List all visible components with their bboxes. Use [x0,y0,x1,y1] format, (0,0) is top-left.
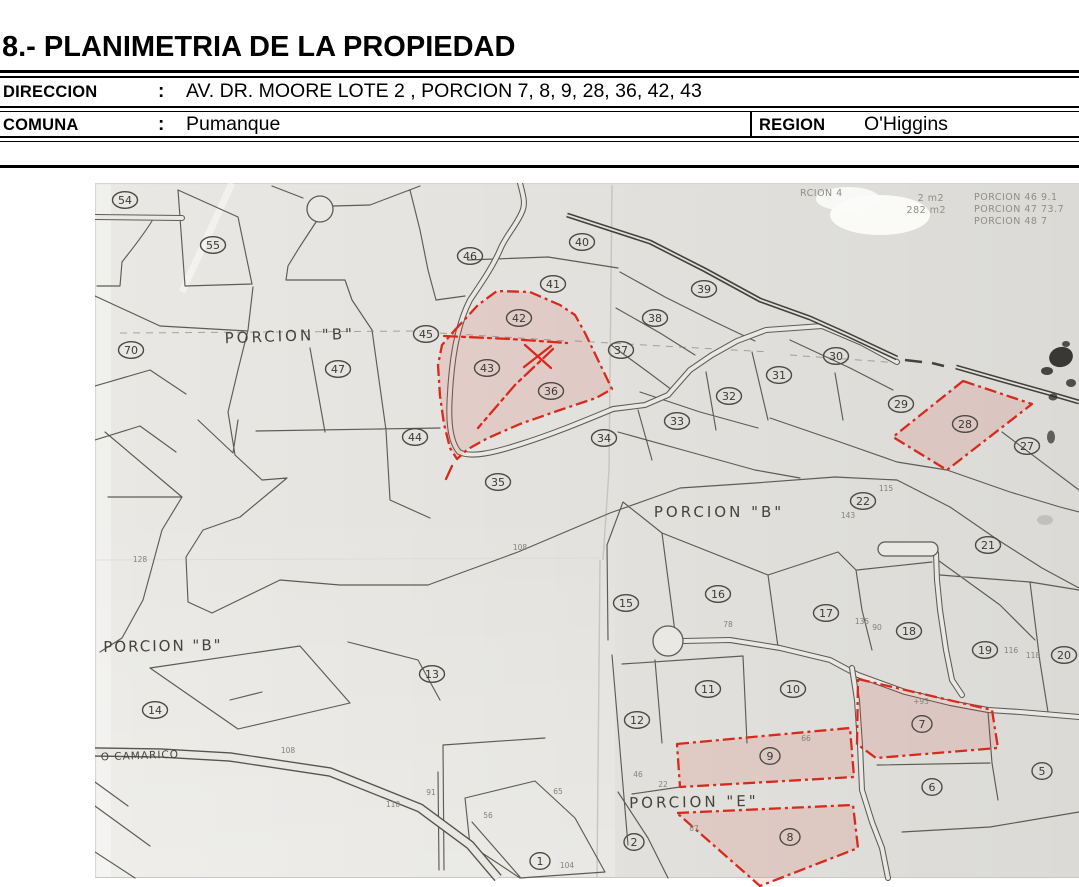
parcel-number-18: 18 [902,625,916,638]
row-rule [0,141,1079,142]
region-label: REGION [759,116,825,135]
road [95,217,182,218]
parcel-number-42: 42 [512,312,526,325]
parcel-number-17: 17 [819,607,833,620]
parcel-number-16: 16 [711,588,725,601]
measurement-number: +93 [913,697,929,706]
ink-stain [1049,394,1058,401]
corner-note: RCION 4 [800,188,843,199]
comuna-value: Pumanque [186,113,280,136]
region-cell-divider [750,111,752,138]
measurement-number: 87 [689,824,699,833]
parcel-number-41: 41 [546,278,560,291]
document-page: 8.- PLANIMETRIA DE LA PROPIEDAD DIRECCIO… [0,0,1079,887]
cul-de-sac-loop [307,196,333,222]
corner-note: PORCION 48 7 [974,216,1048,227]
parcel-number-43: 43 [480,362,494,375]
cadastral-map: 5455704640413938423745474336313029282744… [95,183,1079,887]
measurement-number: 116 [1004,646,1019,655]
parcel-number-5: 5 [1039,765,1046,778]
parcel-number-38: 38 [648,312,662,325]
measurement-number: 91 [426,788,436,797]
direccion-label: DIRECCION [3,83,97,102]
direccion-value: AV. DR. MOORE LOTE 2 , PORCION 7, 8, 9, … [186,80,702,103]
field-row-comuna: COMUNA : Pumanque REGION O'Higgins [0,112,1079,136]
property-map-scan: 5455704640413938423745474336313029282744… [95,183,1079,887]
measurement-number: 108 [281,746,296,755]
field-row-direccion: DIRECCION : AV. DR. MOORE LOTE 2 , PORCI… [0,79,1079,106]
parcel-number-37: 37 [614,344,628,357]
parcel-number-28: 28 [958,418,972,431]
measurement-number: 56 [483,811,493,820]
parcel-number-40: 40 [575,236,589,249]
parcel-number-6: 6 [929,781,936,794]
corner-note: PORCION 46 9.1 [974,192,1058,203]
area-label: PORCION "B" [103,636,223,656]
parcel-number-14: 14 [148,704,162,717]
cul-de-sac-loop [653,626,683,656]
parcel-number-45: 45 [419,328,433,341]
ink-stain [1062,341,1070,347]
parcel-number-10: 10 [786,683,800,696]
parcel-number-7: 7 [919,718,926,731]
parcel-number-32: 32 [722,390,736,403]
parcel-number-29: 29 [894,398,908,411]
parcel-number-35: 35 [491,476,505,489]
parcel-number-33: 33 [670,415,684,428]
measurement-number: 104 [560,861,575,870]
parcel-number-31: 31 [772,369,786,382]
ink-stain [1047,431,1055,444]
title-rule-bottom [0,76,1079,78]
parcel-number-47: 47 [331,363,345,376]
row-rule [0,106,1079,108]
ink-smudge [1037,515,1053,525]
parcel-number-44: 44 [408,431,422,444]
parcel-number-39: 39 [697,283,711,296]
measurement-number: 65 [553,787,563,796]
region-value: O'Higgins [864,113,948,136]
parcel-number-34: 34 [597,432,611,445]
corner-note: 282 m2 [907,205,946,216]
parcel-number-46: 46 [463,250,477,263]
parcel-number-8: 8 [787,831,794,844]
road-end-cap [878,542,938,556]
parcel-number-55: 55 [206,239,220,252]
comuna-label: COMUNA [3,116,78,135]
parcel-number-15: 15 [619,597,633,610]
row-rule [0,136,1079,138]
parcel-number-27: 27 [1020,440,1034,453]
parcel-number-9: 9 [767,750,774,763]
measurement-number: 108 [513,543,528,552]
title-rule-top [0,70,1079,73]
parcel-number-19: 19 [978,644,992,657]
parcel-number-20: 20 [1057,649,1071,662]
parcel-number-12: 12 [630,714,644,727]
page-title: 8.- PLANIMETRIA DE LA PROPIEDAD [2,31,515,64]
paper-shading [95,500,615,878]
parcel-number-30: 30 [829,350,843,363]
measurement-number: 22 [658,780,668,789]
measurement-number: 46 [633,770,643,779]
parcel-number-13: 13 [425,668,439,681]
parcel-number-36: 36 [544,385,558,398]
ink-stain [1041,367,1053,375]
parcel-number-11: 11 [701,683,715,696]
measurement-number: 135 [855,617,870,626]
measurement-number: 90 [872,623,882,632]
direccion-colon: : [158,81,164,103]
paper-margin [95,183,111,878]
corner-note: 2 m2 [918,193,944,204]
parcel-number-21: 21 [981,539,995,552]
measurement-number: 110 [386,800,401,809]
area-label: PORCION "B" [654,503,784,521]
area-label: PORCION "E" [629,792,759,812]
parcel-number-2: 2 [631,836,638,849]
measurement-number: 118 [1026,651,1041,660]
parcel-number-1: 1 [537,855,544,868]
measurement-number: 78 [723,620,733,629]
measurement-number: 128 [133,555,148,564]
measurement-number: 115 [879,484,894,493]
section-rule [0,165,1079,168]
parcel-number-54: 54 [118,194,132,207]
corner-note: PORCION 47 73.7 [974,204,1064,215]
ink-stain [1066,379,1076,387]
parcel-number-70: 70 [124,344,138,357]
comuna-colon: : [158,114,164,136]
parcel-number-22: 22 [856,495,870,508]
measurement-number: 143 [841,511,856,520]
measurement-number: 66 [801,734,811,743]
